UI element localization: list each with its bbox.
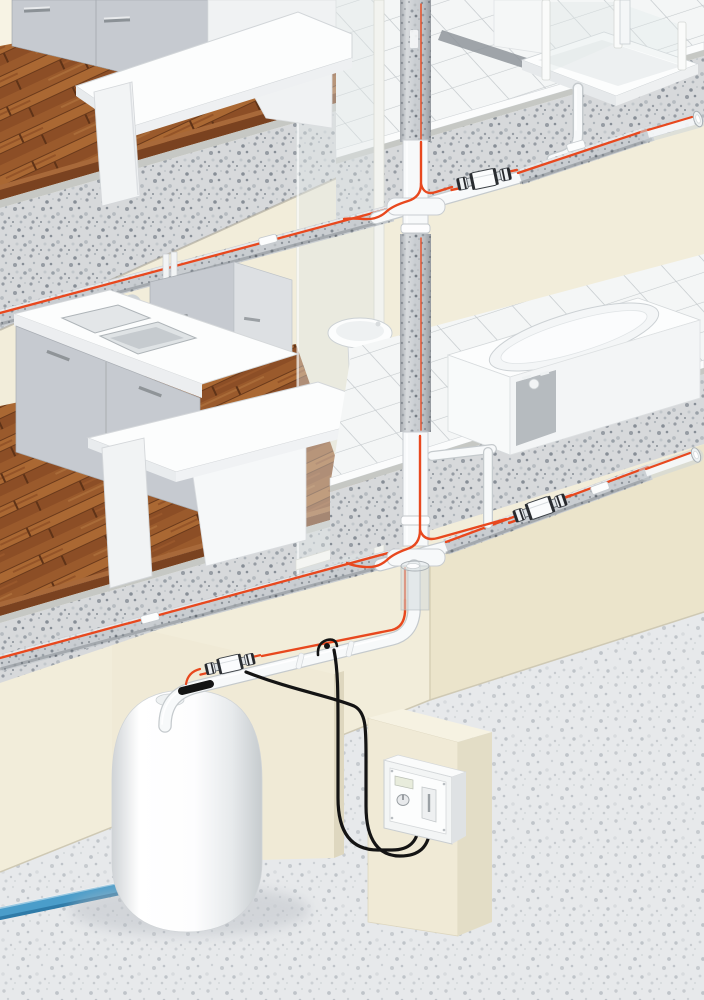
controller-side xyxy=(452,772,466,844)
riser-tape-tag xyxy=(410,30,418,48)
illustration-canvas xyxy=(0,0,704,1000)
water-heater xyxy=(112,690,262,932)
shower-glass-post xyxy=(542,0,550,80)
water-heater-tank xyxy=(112,690,262,932)
table-leg xyxy=(94,82,140,206)
screw xyxy=(391,770,394,773)
shower-glass-post xyxy=(678,22,686,70)
coupling-ring xyxy=(401,516,430,525)
coupling-ring xyxy=(401,224,430,233)
pipe-end xyxy=(407,563,420,568)
shower-back-panel xyxy=(494,0,548,54)
transparent-sleeve-riser-bottom xyxy=(401,561,429,610)
screw xyxy=(391,817,394,820)
screw xyxy=(443,783,446,786)
building-cutaway-illustration xyxy=(0,0,704,1000)
table-leg xyxy=(102,438,152,588)
basin-faucet xyxy=(376,322,381,327)
shower-riser-pipe xyxy=(620,0,630,44)
tub-faucet xyxy=(529,379,539,389)
screw xyxy=(443,829,446,832)
